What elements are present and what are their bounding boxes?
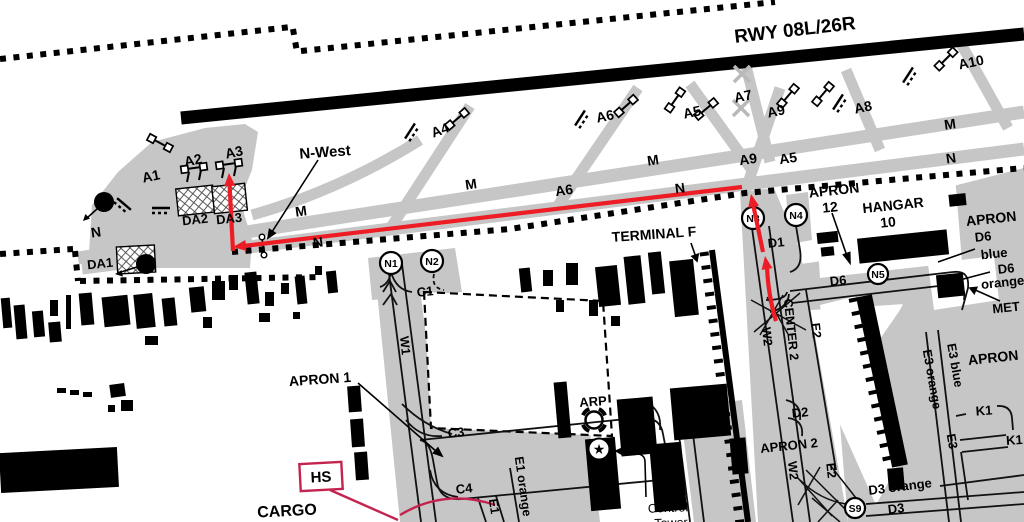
terminal-f-label: TERMINAL F — [611, 223, 697, 245]
taxiway-d1-label: D1 — [767, 234, 785, 251]
node-s9: S9 — [849, 503, 862, 515]
airport-ground-chart: TML 2 — [0, 0, 1024, 522]
taxiway-m-label: M — [646, 151, 660, 168]
taxiway-m-label: M — [464, 175, 478, 192]
hotspot-label: HS — [310, 468, 332, 486]
tower-star-icon: ★ — [593, 441, 606, 457]
e2-route-label-2: E2 — [823, 462, 839, 479]
node-n5: N5 — [871, 269, 885, 281]
d2-label: D2 — [791, 404, 809, 421]
apron12-number: 12 — [821, 198, 838, 216]
e2-route-label: E2 — [808, 322, 824, 339]
taxiway-m-label: M — [943, 115, 957, 132]
control-tower-label-2: Tower — [654, 515, 688, 522]
taxiway-a9-label: A9 — [766, 101, 787, 120]
apron1-label: APRON 1 — [288, 369, 351, 389]
deice-da2-label: DA2 — [181, 211, 208, 229]
w2-route-label-2: W2 — [785, 461, 801, 481]
hangar-number: 10 — [879, 213, 896, 231]
arp-label: ARP — [579, 393, 608, 410]
node-n4: N4 — [789, 210, 803, 222]
deice-da1-label: DA1 — [86, 255, 113, 273]
n-west-sign-icon — [259, 234, 265, 240]
taxiway-a5-label: A5 — [778, 149, 798, 167]
d3-label: D3 — [887, 500, 905, 517]
w1-route-label: W1 — [397, 336, 413, 356]
c1-label: C1 — [416, 283, 434, 300]
taxiway-a6-label: A6 — [554, 181, 574, 199]
runway-label: RWY 08L/26R — [733, 13, 857, 48]
marker-2: 2 — [101, 196, 108, 210]
taxiway-a9-label: A9 — [738, 150, 758, 168]
runway-08l-26r — [181, 34, 1024, 118]
cargo-label: CARGO — [257, 501, 317, 521]
k1-label: K1 — [975, 402, 993, 418]
met-label: MET — [992, 299, 1021, 317]
tml2-building: TML 2 — [670, 384, 731, 441]
taxiway-d6-label: D6 — [829, 272, 847, 289]
chart-canvas: TML 2 — [0, 0, 1024, 522]
tml2-label: TML — [686, 394, 716, 412]
node-n2: N2 — [425, 256, 439, 268]
c4-label: C4 — [455, 480, 474, 497]
tml2-number: 2 — [696, 412, 705, 429]
city-buildings — [1, 266, 338, 412]
e1-route-label: E1 — [486, 498, 502, 515]
node-n1: N1 — [384, 258, 398, 270]
d6-blue-word: blue — [980, 245, 1008, 263]
k1-label-2: K1 — [1006, 432, 1024, 448]
marker-1: 1 — [143, 258, 150, 272]
c3-label: C3 — [447, 424, 465, 441]
taxiway-n-label: N — [674, 179, 686, 196]
taxiway-m-label: M — [294, 202, 308, 219]
control-tower-label-1: Control — [648, 500, 689, 515]
cargo-building — [0, 447, 119, 493]
d6-blue-route: D6 — [974, 228, 992, 245]
met-building — [936, 273, 965, 299]
n-west-label: N-West — [299, 142, 351, 163]
w2-route-label: W2 — [759, 327, 775, 347]
e3-route-label: E3 — [944, 433, 960, 451]
control-tower-icon: ★ — [589, 439, 610, 460]
deice-da3-label: DA3 — [215, 210, 242, 228]
